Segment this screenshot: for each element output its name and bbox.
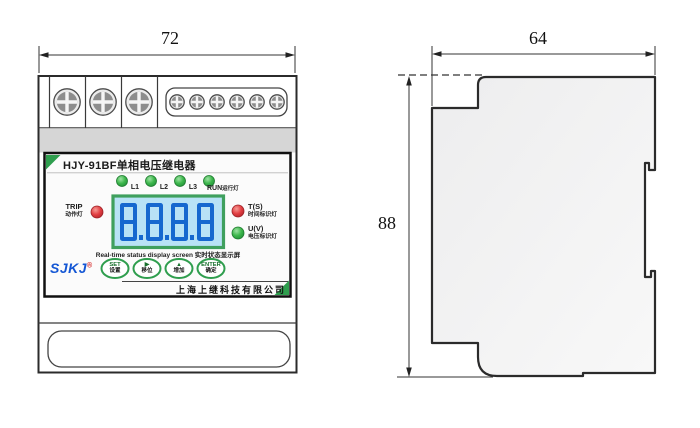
screw-terminal — [210, 95, 224, 109]
arrowhead-right — [646, 51, 656, 57]
increase-button-label: ▲ 增加 — [164, 262, 194, 274]
lcd-digit — [120, 203, 137, 241]
screw-terminal — [170, 95, 184, 109]
run-suffix: 运行灯 — [222, 186, 239, 192]
run-label: RUN — [207, 185, 222, 192]
company-name: 上海上继科技有限公司 — [142, 283, 286, 296]
screw-terminal — [126, 89, 152, 115]
registered-mark-icon: ® — [87, 262, 93, 269]
time-led-label: T(S) 时间标识灯 — [248, 203, 292, 218]
voltage-led-label: U(V) 电压标识灯 — [248, 225, 292, 240]
led-label-l2: L2 — [156, 184, 172, 191]
voltage-en: U(V) — [248, 225, 292, 234]
time-en: T(S) — [248, 203, 292, 212]
side-width-label: 64 — [518, 28, 558, 49]
screw-terminal — [54, 89, 80, 115]
logo-text: SJKJ — [50, 260, 87, 276]
lcd-digit — [171, 203, 188, 241]
top-gray-band — [40, 129, 296, 153]
panel-title: HJY-91BF单相电压继电器 — [63, 157, 196, 173]
shift-button-label: ▶ 移位 — [132, 262, 162, 274]
brand-logo: SJKJ® — [50, 260, 93, 276]
screw-terminal — [270, 95, 284, 109]
led-l2 — [146, 176, 157, 187]
increase-zh: 增加 — [164, 268, 194, 274]
time-zh: 时间标识灯 — [248, 212, 292, 219]
side-view — [397, 46, 655, 377]
front-width-label: 72 — [150, 28, 190, 49]
enter-button-label: ENTER 确定 — [196, 262, 226, 274]
voltage-zh: 电压标识灯 — [248, 234, 292, 241]
arrowhead-right — [286, 52, 296, 58]
led-label-run: RUN运行灯 — [207, 184, 239, 192]
lcd-decimal-point — [139, 235, 143, 240]
screw-terminal — [190, 95, 204, 109]
led-label-l1: L1 — [127, 184, 143, 191]
arrowhead-up — [406, 76, 412, 86]
led-label-l3: L3 — [185, 184, 201, 191]
trip-en: TRIP — [56, 203, 92, 212]
lcd-digit — [197, 203, 214, 241]
screen-caption: Real-time status display screen 实时状态显示屏 — [70, 249, 266, 259]
screw-terminal — [90, 89, 116, 115]
lcd-display — [120, 201, 218, 241]
led-trip — [91, 206, 103, 218]
arrowhead-down — [406, 368, 412, 378]
side-profile — [432, 77, 655, 376]
screw-terminal — [230, 95, 244, 109]
dimension-front-width — [39, 46, 295, 73]
technical-drawing: 72 64 88 HJY-91BF单相电压继电器 L1 L2 L3 RUN运行灯… — [0, 0, 700, 428]
led-l1 — [117, 176, 128, 187]
screw-terminal — [250, 95, 264, 109]
led-time — [232, 205, 244, 217]
drawing-artwork — [0, 0, 700, 428]
side-height-label: 88 — [370, 213, 404, 234]
lcd-decimal-point — [190, 235, 194, 240]
led-voltage — [232, 227, 244, 239]
arrowhead-left — [432, 51, 442, 57]
trip-led-label: TRIP 动作灯 — [56, 203, 92, 218]
enter-zh: 确定 — [196, 268, 226, 274]
lcd-digit — [146, 203, 163, 241]
led-l3 — [175, 176, 186, 187]
lcd-decimal-point — [165, 235, 169, 240]
shift-zh: 移位 — [132, 268, 162, 274]
arrowhead-left — [39, 52, 49, 58]
trip-zh: 动作灯 — [56, 212, 92, 219]
set-zh: 设置 — [100, 268, 130, 274]
set-button-label: SET 设置 — [100, 262, 130, 274]
